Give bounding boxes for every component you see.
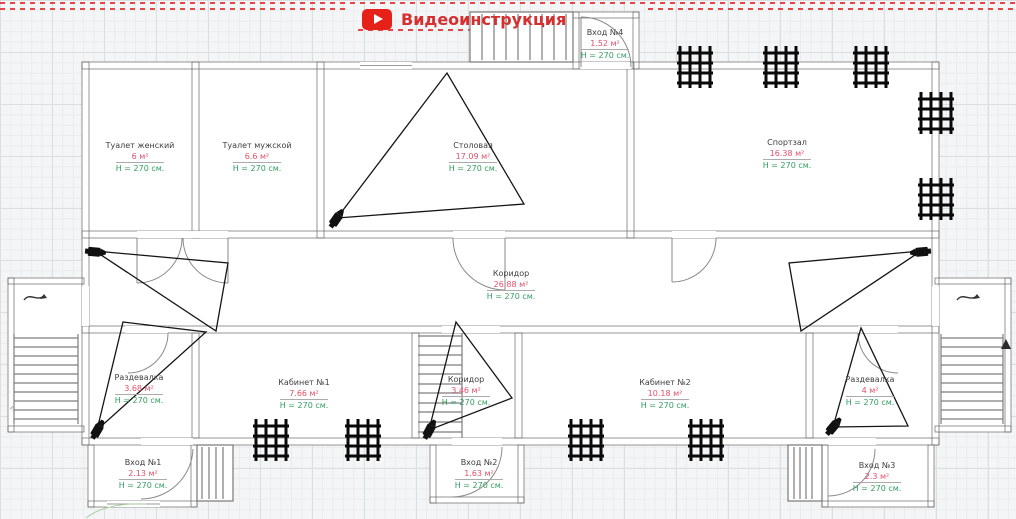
room-label-entrance2[interactable]: Вход №2 1.63 м² H = 270 см. — [429, 457, 529, 491]
room-name: Туалет женский — [90, 140, 190, 151]
room-area: 16.38 м² — [763, 149, 811, 160]
room-name: Кабинет №1 — [254, 377, 354, 388]
room-height: H = 270 см. — [254, 400, 354, 411]
room-area: 3.68 м² — [115, 384, 163, 395]
room-height: H = 270 см. — [93, 480, 193, 491]
room-area: 7.66 м² — [280, 389, 328, 400]
room-name: Вход №1 — [93, 457, 193, 468]
room-area: 17.09 м² — [449, 152, 497, 163]
room-label-dining[interactable]: Столовая 17.09 м² H = 270 см. — [423, 140, 523, 174]
room-label-cabinet2[interactable]: Кабинет №2 10.18 м² H = 270 см. — [615, 377, 715, 411]
room-label-locker-right[interactable]: Раздевалка 4 м² H = 270 см. — [820, 374, 920, 408]
room-area: 6 м² — [116, 152, 164, 163]
floor-plan-drawing — [0, 0, 1016, 519]
video-instruction-label: Видеоинструкция — [401, 10, 566, 29]
room-name: Туалет мужской — [207, 140, 307, 151]
room-label-corridor-main[interactable]: Коридор 26.88 м² H = 270 см. — [461, 268, 561, 302]
room-label-locker-left[interactable]: Раздевалка 3.68 м² H = 270 см. — [89, 372, 189, 406]
room-height: H = 270 см. — [423, 163, 523, 174]
room-label-gym[interactable]: Спортзал 16.38 м² H = 270 см. — [737, 137, 837, 171]
room-height: H = 270 см. — [90, 163, 190, 174]
room-area: 4 м² — [846, 386, 894, 397]
room-name: Коридор — [461, 268, 561, 279]
room-height: H = 270 см. — [615, 400, 715, 411]
room-label-toilet-men[interactable]: Туалет мужской 6.6 м² H = 270 см. — [207, 140, 307, 174]
room-height: H = 270 см. — [737, 160, 837, 171]
room-area: 1.63 м² — [455, 469, 503, 480]
room-area: 6.6 м² — [233, 152, 281, 163]
room-label-corridor-small[interactable]: Коридор 3.46 м² H = 270 см. — [416, 374, 516, 408]
plan-canvas[interactable]: Видеоинструкция Туалет женский 6 м² H = … — [0, 0, 1016, 519]
room-height: H = 270 см. — [89, 395, 189, 406]
room-area: 3.46 м² — [442, 386, 490, 397]
video-instruction-link[interactable]: Видеоинструкция — [362, 9, 566, 30]
room-area: 10.18 м² — [641, 389, 689, 400]
room-height: H = 270 см. — [820, 397, 920, 408]
room-area: 2.3 м² — [853, 472, 901, 483]
room-name: Кабинет №2 — [615, 377, 715, 388]
room-height: H = 270 см. — [416, 397, 516, 408]
youtube-play-icon — [362, 9, 392, 30]
floor-areas — [8, 12, 1011, 507]
room-label-entrance3[interactable]: Вход №3 2.3 м² H = 270 см. — [827, 460, 927, 494]
room-name: Раздевалка — [89, 372, 189, 383]
room-height: H = 270 см. — [461, 291, 561, 302]
room-name: Вход №2 — [429, 457, 529, 468]
room-height: H = 270 см. — [429, 480, 529, 491]
room-label-entrance1[interactable]: Вход №1 2.13 м² H = 270 см. — [93, 457, 193, 491]
room-height: H = 270 см. — [207, 163, 307, 174]
room-name: Вход №4 — [555, 27, 655, 38]
room-label-toilet-women[interactable]: Туалет женский 6 м² H = 270 см. — [90, 140, 190, 174]
room-label-entrance4[interactable]: Вход №4 1.52 м² H = 270 см. — [555, 27, 655, 61]
room-name: Раздевалка — [820, 374, 920, 385]
room-height: H = 270 см. — [555, 50, 655, 61]
room-height: H = 270 см. — [827, 483, 927, 494]
room-area: 1.52 м² — [581, 39, 629, 50]
room-label-cabinet1[interactable]: Кабинет №1 7.66 м² H = 270 см. — [254, 377, 354, 411]
room-name: Вход №3 — [827, 460, 927, 471]
up-arrow-icon[interactable] — [1001, 339, 1011, 349]
room-area: 26.88 м² — [487, 280, 535, 291]
room-name: Коридор — [416, 374, 516, 385]
room-name: Столовая — [423, 140, 523, 151]
room-area: 2.13 м² — [119, 469, 167, 480]
room-name: Спортзал — [737, 137, 837, 148]
